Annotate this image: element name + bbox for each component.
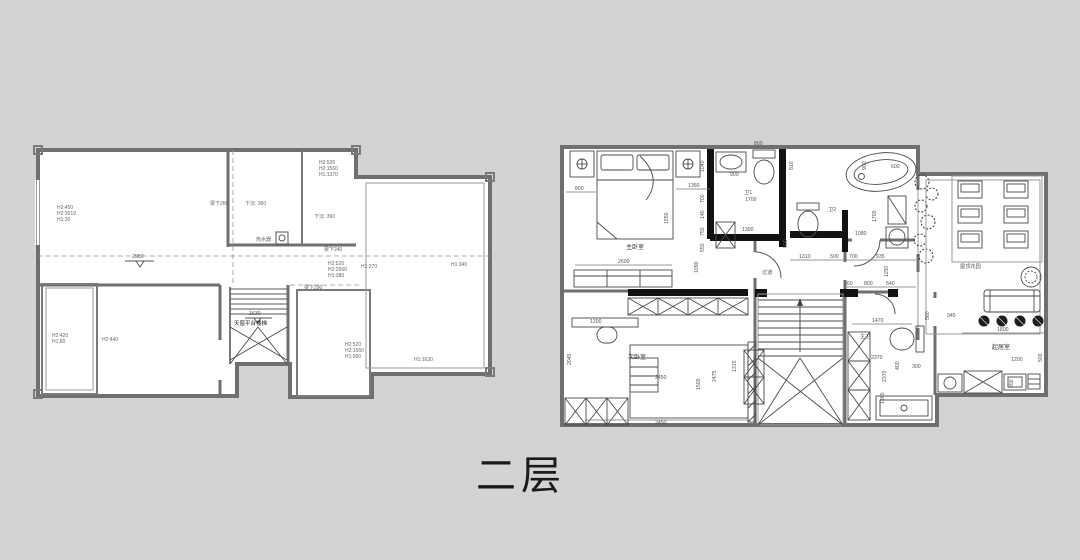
black-wall bbox=[888, 289, 898, 297]
height-note: H1:1630 bbox=[414, 357, 433, 363]
dim-label: 1200 bbox=[1011, 357, 1023, 363]
dim-label: 1310 bbox=[799, 254, 811, 260]
dim-label: 2370 bbox=[882, 370, 888, 382]
dim-label: 1550 bbox=[664, 212, 670, 224]
height-note: H1:990 bbox=[345, 354, 361, 360]
dim-label: 300 bbox=[912, 364, 921, 370]
dim-label: 1360 bbox=[880, 392, 886, 404]
dim-label: 800 bbox=[575, 186, 584, 192]
dim-label: 500 bbox=[1038, 353, 1044, 362]
sunken-note: 下沉: 360 bbox=[245, 200, 266, 207]
dim-label: 800 bbox=[754, 141, 763, 147]
sunken-note: 下沉: 360 bbox=[314, 213, 335, 220]
stair-label: 天窗平台楼梯 bbox=[234, 319, 268, 327]
level-label: 1630 bbox=[249, 311, 261, 317]
dim-label: 900 bbox=[862, 161, 868, 170]
black-wall bbox=[707, 149, 714, 239]
dim-label: 1200 bbox=[590, 319, 602, 325]
height-note: H1:1370 bbox=[319, 172, 338, 178]
dim-label: 600 bbox=[891, 164, 900, 170]
height-note: H2:440 bbox=[102, 337, 118, 343]
dim-label: 2600 bbox=[618, 259, 630, 265]
dim-label: 1080 bbox=[855, 231, 867, 237]
dim-label: 750 bbox=[700, 227, 706, 236]
right-plan: 主卧室 卫1 卫2 屋顶花园 过道 次卧室 主卫 起居室 800 800 136… bbox=[562, 141, 1046, 426]
dim-label: 1300 bbox=[742, 227, 754, 233]
dim-label: 1800 bbox=[997, 327, 1009, 333]
black-wall bbox=[790, 231, 844, 238]
dim-label: 900 bbox=[730, 172, 739, 178]
dim-label: 550 bbox=[1009, 379, 1015, 388]
dim-label: 500 bbox=[783, 239, 789, 248]
dim-label: 935 bbox=[876, 254, 885, 260]
floor-title: 二层 bbox=[476, 443, 676, 501]
height-note: H1:340 bbox=[451, 262, 467, 268]
room-label-corridor: 过道 bbox=[762, 268, 772, 276]
height-note: H1:60 bbox=[52, 339, 66, 345]
dim-label: 1150 bbox=[884, 266, 890, 277]
dim-label: 800 bbox=[864, 281, 873, 287]
level-label: 2980 bbox=[132, 254, 144, 260]
dim-label: 1500 bbox=[696, 378, 702, 390]
height-note: H1:270 bbox=[361, 264, 377, 270]
dim-label: 700 bbox=[849, 254, 858, 260]
dim-label: 1360 bbox=[688, 183, 700, 189]
beam-note: 梁下290 bbox=[304, 284, 323, 291]
room-label-bedroom2: 次卧室 bbox=[628, 353, 646, 361]
black-wall bbox=[755, 289, 767, 297]
dim-label: 945 bbox=[947, 313, 956, 319]
window-symbol bbox=[35, 180, 41, 245]
dim-label: 400 bbox=[895, 361, 901, 370]
room-label-master: 主卧室 bbox=[626, 243, 644, 251]
dim-label: 1315 bbox=[732, 360, 738, 372]
dim-label: 810 bbox=[789, 161, 795, 170]
beam-note: 梁下240 bbox=[324, 246, 343, 253]
dim-label: 1090 bbox=[694, 261, 700, 273]
room-label-master-bath: 主卫 bbox=[860, 332, 870, 340]
dim-label: 1040 bbox=[700, 160, 706, 172]
dim-label: 2450 bbox=[655, 375, 667, 381]
dim-label: 2370 bbox=[871, 355, 883, 361]
dim-label: 560 bbox=[925, 311, 931, 320]
dim-label: 540 bbox=[886, 281, 895, 287]
room-label-bath1: 卫1 bbox=[744, 189, 752, 196]
dim-label: 500 bbox=[830, 254, 839, 260]
heater-label: 热水器 bbox=[256, 236, 271, 243]
room-label-bath2: 卫2 bbox=[828, 206, 836, 213]
beam-note: 梁下260 bbox=[210, 200, 229, 207]
left-plan: H2:450 H2:3519 H1:30 2980 梁下260 下沉: 360 … bbox=[34, 146, 494, 398]
dim-label: 140 bbox=[700, 210, 706, 219]
dim-label: 2045 bbox=[567, 353, 573, 365]
room-label-living: 起居室 bbox=[992, 343, 1010, 351]
room-label-terrace: 屋顶花园 bbox=[960, 262, 981, 270]
dim-label: 1700 bbox=[745, 197, 757, 203]
dim-label: 2475 bbox=[712, 370, 718, 382]
dim-label: 1470 bbox=[872, 318, 884, 324]
dim-label: 1700 bbox=[872, 210, 878, 222]
black-wall bbox=[628, 289, 748, 296]
right-plan-outline bbox=[562, 147, 1046, 425]
height-note: H1:380 bbox=[328, 273, 344, 279]
dim-label: 550 bbox=[700, 243, 706, 252]
dim-label: 360 bbox=[844, 281, 853, 287]
dim-label: 700 bbox=[700, 194, 706, 203]
dim-label: 2450 bbox=[655, 420, 667, 426]
floorplan-sheet: H2:450 H2:3519 H1:30 2980 梁下260 下沉: 360 … bbox=[0, 0, 1080, 560]
black-wall bbox=[779, 149, 786, 247]
height-note: H1:30 bbox=[57, 217, 71, 223]
